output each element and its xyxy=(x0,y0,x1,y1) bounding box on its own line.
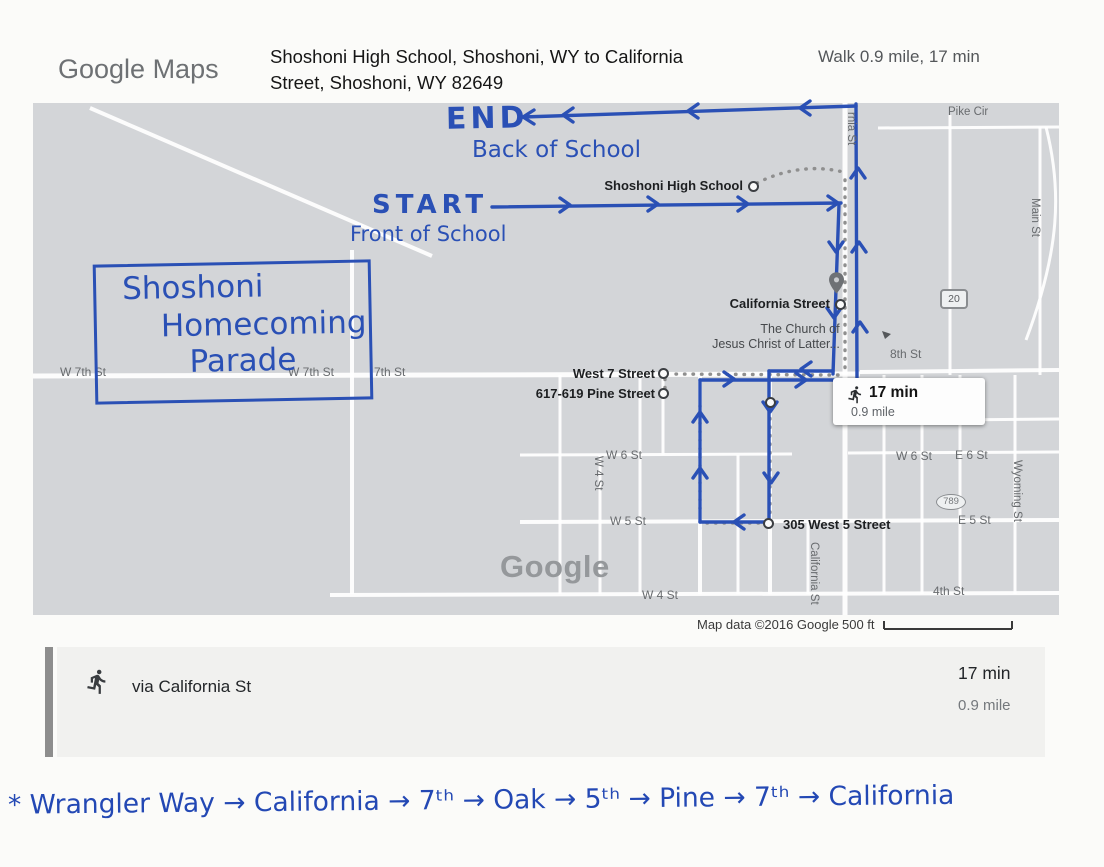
street-label-w6-right: W 6 St xyxy=(896,449,932,463)
street-label-wyoming: Wyoming St xyxy=(1011,460,1023,522)
street-label-main: Main St xyxy=(1029,198,1041,237)
marker-california-street xyxy=(835,299,846,310)
marker-pine-street xyxy=(658,388,669,399)
marker-oak-waypoint xyxy=(765,397,776,408)
marker-high-school xyxy=(748,181,759,192)
annotation-end: END xyxy=(446,100,529,136)
poi-west-7-street: West 7 Street xyxy=(561,366,655,381)
google-watermark: Google xyxy=(500,549,610,585)
walking-person-icon xyxy=(84,668,111,695)
google-maps-logo: Google Maps xyxy=(58,54,219,85)
street-label-w4-vertical: W 4 St xyxy=(592,456,604,491)
street-label-8th: 8th St xyxy=(890,347,921,361)
street-label-california-top: rnia St xyxy=(845,112,857,145)
street-label-w5: W 5 St xyxy=(610,514,646,528)
panel-duration: 17 min xyxy=(958,663,1011,684)
via-street-text: via California St xyxy=(132,677,251,697)
directions-panel xyxy=(57,647,1045,757)
route-title-line1: Shoshoni High School, Shoshoni, WY to Ca… xyxy=(270,46,830,68)
parade-box-line2: Homecoming xyxy=(161,304,367,344)
poi-church-line2: Jesus Christ of Latter... xyxy=(688,337,864,351)
duration-badge: 17 min 0.9 mile xyxy=(833,378,985,425)
street-label-4th: 4th St xyxy=(933,584,964,598)
panel-distance: 0.9 mile xyxy=(958,697,1011,714)
parade-box: Shoshoni Homecoming Parade xyxy=(93,259,374,404)
route-note: * Wrangler Way → California → 7ᵗʰ → Oak … xyxy=(8,778,1104,820)
annotation-start: START xyxy=(372,190,488,220)
poi-pine-street: 617-619 Pine Street xyxy=(517,386,655,401)
highway-shield-20: 20 xyxy=(940,289,968,309)
street-label-7th: 7th St xyxy=(374,365,405,379)
parade-box-line3: Parade xyxy=(189,342,296,380)
scale-bar xyxy=(884,621,1012,629)
route-title-line2: Street, Shoshoni, WY 82649 xyxy=(270,72,830,94)
parade-box-line1: Shoshoni xyxy=(122,268,264,307)
highway-shield-789: 789 xyxy=(936,494,966,510)
location-pin-icon xyxy=(829,272,844,294)
annotation-end-sub: Back of School xyxy=(472,137,641,163)
panel-accent-bar xyxy=(45,647,53,757)
poi-church-line1: The Church of xyxy=(745,322,855,336)
street-label-e6: E 6 St xyxy=(955,448,988,462)
map-attribution: Map data ©2016 Google xyxy=(697,617,839,632)
badge-duration: 17 min xyxy=(869,384,918,402)
street-label-california-bottom: California St xyxy=(808,542,820,605)
route-summary: Walk 0.9 mile, 17 min xyxy=(818,47,980,67)
street-label-pike-cir: Pike Cir xyxy=(948,106,988,118)
walking-person-icon xyxy=(846,385,865,404)
scanned-map-page: Google Maps Shoshoni High School, Shosho… xyxy=(0,0,1104,867)
street-label-e5: E 5 St xyxy=(958,513,991,527)
marker-west-5-street xyxy=(763,518,774,529)
street-label-w4: W 4 St xyxy=(642,588,678,602)
marker-west-7-street xyxy=(658,368,669,379)
church-poi-icon xyxy=(882,329,892,339)
street-label-w6-left: W 6 St xyxy=(606,448,642,462)
annotation-start-sub: Front of School xyxy=(350,222,506,246)
badge-distance: 0.9 mile xyxy=(851,405,895,419)
scale-label: 500 ft xyxy=(842,617,875,632)
poi-california-street: California Street xyxy=(700,296,830,311)
poi-west-5-street: 305 West 5 Street xyxy=(783,517,890,532)
poi-high-school: Shoshoni High School xyxy=(603,178,743,193)
